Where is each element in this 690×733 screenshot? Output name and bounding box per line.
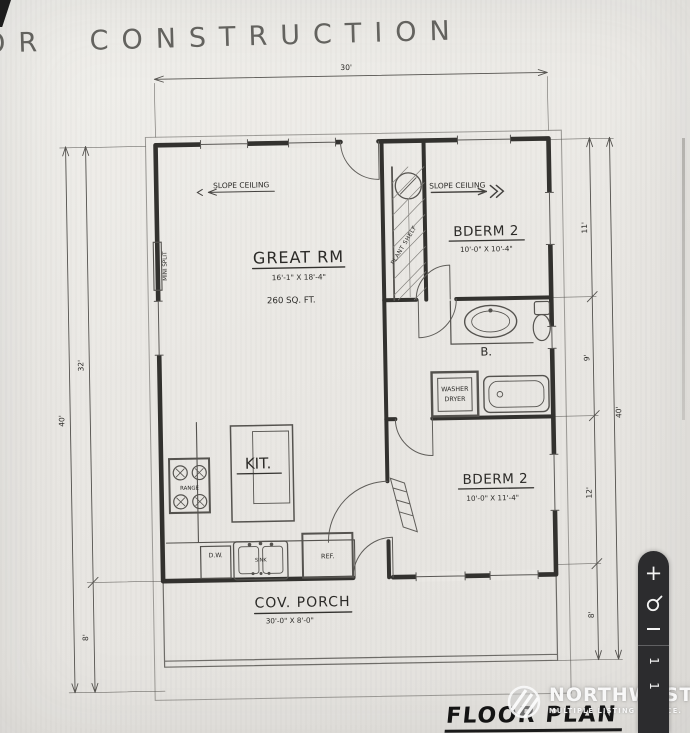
page-current: 1 [646, 657, 660, 665]
porch-label: COV. PORCH [254, 594, 350, 612]
door-arcs [322, 140, 462, 578]
mls-logo-icon [506, 684, 542, 720]
dim-right-bedroom-bottom: 12' [585, 487, 594, 499]
floor-plan-page: OR CONSTRUCTION 30' 32' 40' 8' 11' 9' 12… [0, 0, 690, 733]
bedroom-top-size: 10'-0" X 10'-4" [460, 244, 513, 254]
magnifier-icon[interactable] [645, 595, 663, 616]
dim-right-bedroom-top: 11' [580, 222, 589, 234]
great-room-label: GREAT RM [253, 247, 344, 268]
bedroom-bottom-underline [459, 488, 534, 489]
slope-ceiling-left-label: SLOPE CEILING [213, 180, 270, 190]
dim-right-bath: 9' [582, 354, 591, 361]
exterior-walls [156, 138, 557, 581]
kitchen-label-underline [237, 473, 281, 474]
porch-slab [163, 574, 557, 667]
dim-left-upper: 32' [76, 360, 85, 372]
bedroom-top-label: BDERM 2 [453, 223, 519, 240]
zoom-out-button[interactable] [647, 628, 660, 630]
washer-label: WASHER [441, 386, 469, 393]
bedroom-bottom-door [395, 418, 433, 456]
zoom-in-button[interactable]: + [645, 563, 663, 584]
dim-right-total: 40' [614, 406, 623, 418]
bedroom-top-door [416, 265, 451, 300]
dishwasher-label: D.W. [209, 552, 223, 559]
porch-size: 30'-0" X 8'-0" [266, 616, 314, 626]
bedroom-top-underline [449, 240, 524, 241]
sink-label: SINK [255, 557, 267, 563]
interior-wall-main [381, 141, 389, 577]
windows [150, 133, 561, 586]
mini-split-label: MINI SPLIT [162, 251, 169, 281]
great-room-size: 16'-1" X 18'-4" [272, 272, 326, 282]
floor-plan-drawing: 30' 32' 40' 8' 11' 9' 12' 8' 40' [0, 0, 690, 733]
bedroom-bottom-label: BDERM 2 [462, 471, 528, 488]
dishwasher-icon [201, 546, 232, 579]
dim-top-width: 30' [340, 63, 352, 72]
page-total: 1 [646, 682, 660, 690]
zoom-toolbar: + 1 1 [638, 551, 669, 733]
bath-label: B. [480, 344, 492, 358]
bedroom-bottom-size: 10'-0" X 11'-4" [466, 493, 519, 503]
dim-left-porch: 8' [81, 634, 90, 641]
dim-right-porch: 8' [587, 611, 596, 618]
porch-underline [255, 612, 352, 614]
dryer-label: DRYER [444, 396, 466, 403]
dim-left-total: 40' [57, 415, 66, 427]
kitchen-label: KIT. [245, 454, 272, 472]
great-room-area: 260 SQ. FT. [267, 295, 316, 306]
great-room-door-leaf [390, 478, 417, 532]
refrigerator-label: REF. [321, 552, 335, 560]
front-door [340, 141, 379, 180]
toolbar-divider [638, 645, 669, 646]
slope-ceiling-right-label: SLOPE CEILING [429, 181, 486, 191]
range-label: RANGE [180, 486, 200, 492]
toilet-icon [534, 301, 549, 314]
